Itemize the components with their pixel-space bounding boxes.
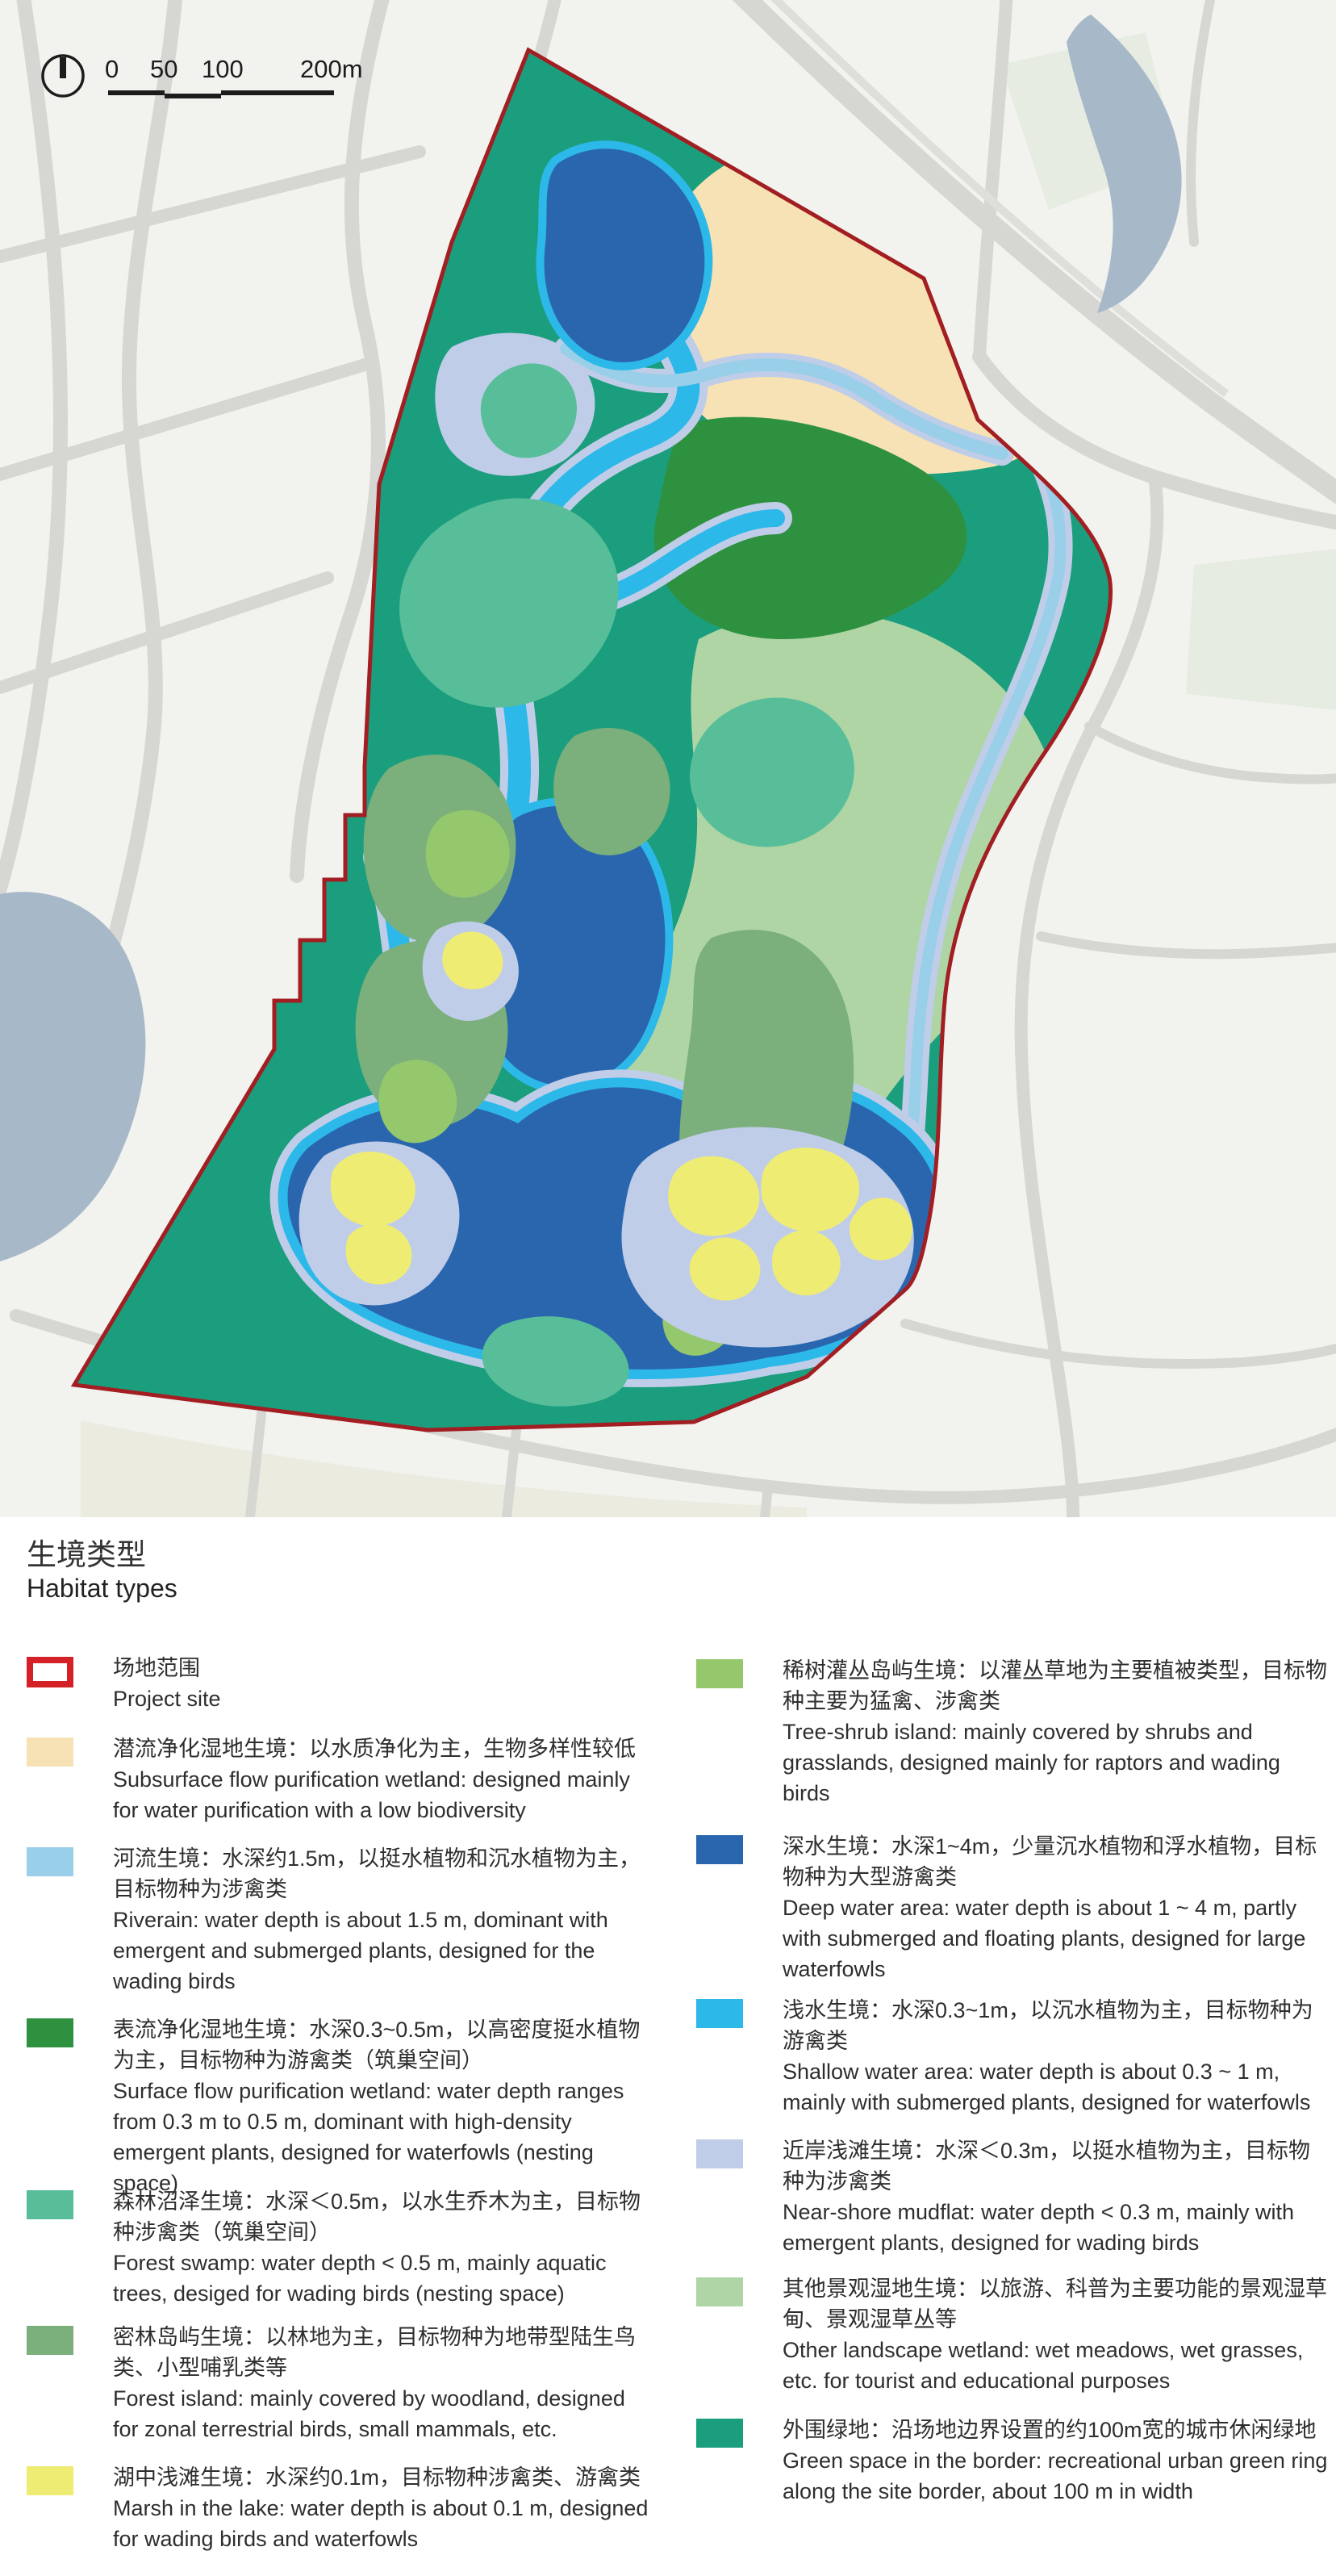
legend-en: Marsh in the lake: water depth is about … (113, 2493, 652, 2554)
habitat-types-plan-page: 0 50 100 200m 生境类型 Habitat types 场地范围Pro… (0, 0, 1336, 2576)
scale-segment (108, 90, 165, 95)
scale-label-200: 200m (300, 55, 363, 84)
shallow-water-swatch (696, 1999, 743, 2028)
near-shore-mudflat-swatch (696, 2139, 743, 2168)
habitat-plan-map: 0 50 100 200m (0, 0, 1336, 1517)
legend-en: Tree-shrub island: mainly covered by shr… (783, 1717, 1330, 1809)
scale-label-100: 100 (202, 55, 244, 84)
legend-en: Near-shore mudflat: water depth < 0.3 m,… (783, 2197, 1330, 2258)
legend-en: Green space in the border: recreational … (783, 2445, 1330, 2507)
project-site-swatch (27, 1657, 73, 1687)
forest-swamp-swatch (27, 2190, 73, 2219)
tree-shrub-island-swatch (696, 1659, 743, 1688)
legend-zh: 表流净化湿地生境：水深0.3~0.5m，以高密度挺水植物为主，目标物种为游禽类（… (113, 2014, 652, 2076)
legend-zh: 森林沼泽生境：水深＜0.5m，以水生乔木为主，目标物种涉禽类（筑巢空间） (113, 2186, 652, 2248)
marsh-in-lake-swatch (27, 2466, 73, 2495)
scale-segment (221, 90, 334, 95)
legend-zh: 河流生境：水深约1.5m，以挺水植物和沉水植物为主，目标物种为涉禽类 (113, 1843, 652, 1905)
legend-title-en: Habitat types (27, 1574, 177, 1604)
legend-en: Riverain: water depth is about 1.5 m, do… (113, 1905, 652, 1997)
scale-segment (165, 94, 221, 98)
legend-zh: 近岸浅滩生境：水深＜0.3m，以挺水植物为主，目标物种为涉禽类 (783, 2135, 1330, 2197)
legend-zh: 深水生境：水深1~4m，少量沉水植物和浮水植物，目标物种为大型游禽类 (783, 1831, 1330, 1892)
scale-label-50: 50 (150, 55, 177, 84)
forest-island-swatch (27, 2326, 73, 2355)
north-arrow-icon (39, 48, 87, 100)
legend-zh: 潜流净化湿地生境：以水质净化为主，生物多样性较低 (113, 1733, 652, 1764)
legend-zh: 其他景观湿地生境：以旅游、科普为主要功能的景观湿草甸、景观湿草丛等 (783, 2273, 1330, 2335)
legend-zh: 外围绿地：沿场地边界设置的约100m宽的城市休闲绿地 (783, 2415, 1330, 2445)
deep-water-swatch (696, 1835, 743, 1864)
scale-label-0: 0 (105, 55, 119, 84)
legend-en: Deep water area: water depth is about 1 … (783, 1892, 1330, 1984)
legend-zh: 密林岛屿生境：以林地为主，目标物种为地带型陆生鸟类、小型哺乳类等 (113, 2322, 652, 2383)
subsurface-wetland-swatch (27, 1738, 73, 1767)
legend-en: Surface flow purification wetland: water… (113, 2076, 652, 2198)
legend-zh: 稀树灌丛岛屿生境：以灌丛草地为主要植被类型，目标物种主要为猛禽、涉禽类 (783, 1655, 1330, 1717)
legend-zh: 湖中浅滩生境：水深约0.1m，目标物种涉禽类、游禽类 (113, 2462, 652, 2493)
legend-title-zh: 生境类型 (27, 1530, 146, 1574)
legend-en: Project site (113, 1683, 652, 1714)
surface-wetland-swatch (27, 2018, 73, 2047)
legend-zh: 浅水生境：水深0.3~1m，以沉水植物为主，目标物种为游禽类 (783, 1995, 1330, 2056)
legend-en: Other landscape wetland: wet meadows, we… (783, 2335, 1330, 2396)
other-landscape-wetland-swatch (696, 2277, 743, 2306)
legend-en: Shallow water area: water depth is about… (783, 2056, 1330, 2118)
scale-bar: 0 50 100 200m (39, 48, 350, 119)
green-space-border-swatch (696, 2419, 743, 2448)
legend-en: Forest island: mainly covered by woodlan… (113, 2383, 652, 2444)
legend-en: Subsurface flow purification wetland: de… (113, 1764, 652, 1825)
legend-en: Forest swamp: water depth < 0.5 m, mainl… (113, 2248, 652, 2309)
riverain-swatch (27, 1847, 73, 1876)
legend-zh: 场地范围 (113, 1653, 652, 1683)
